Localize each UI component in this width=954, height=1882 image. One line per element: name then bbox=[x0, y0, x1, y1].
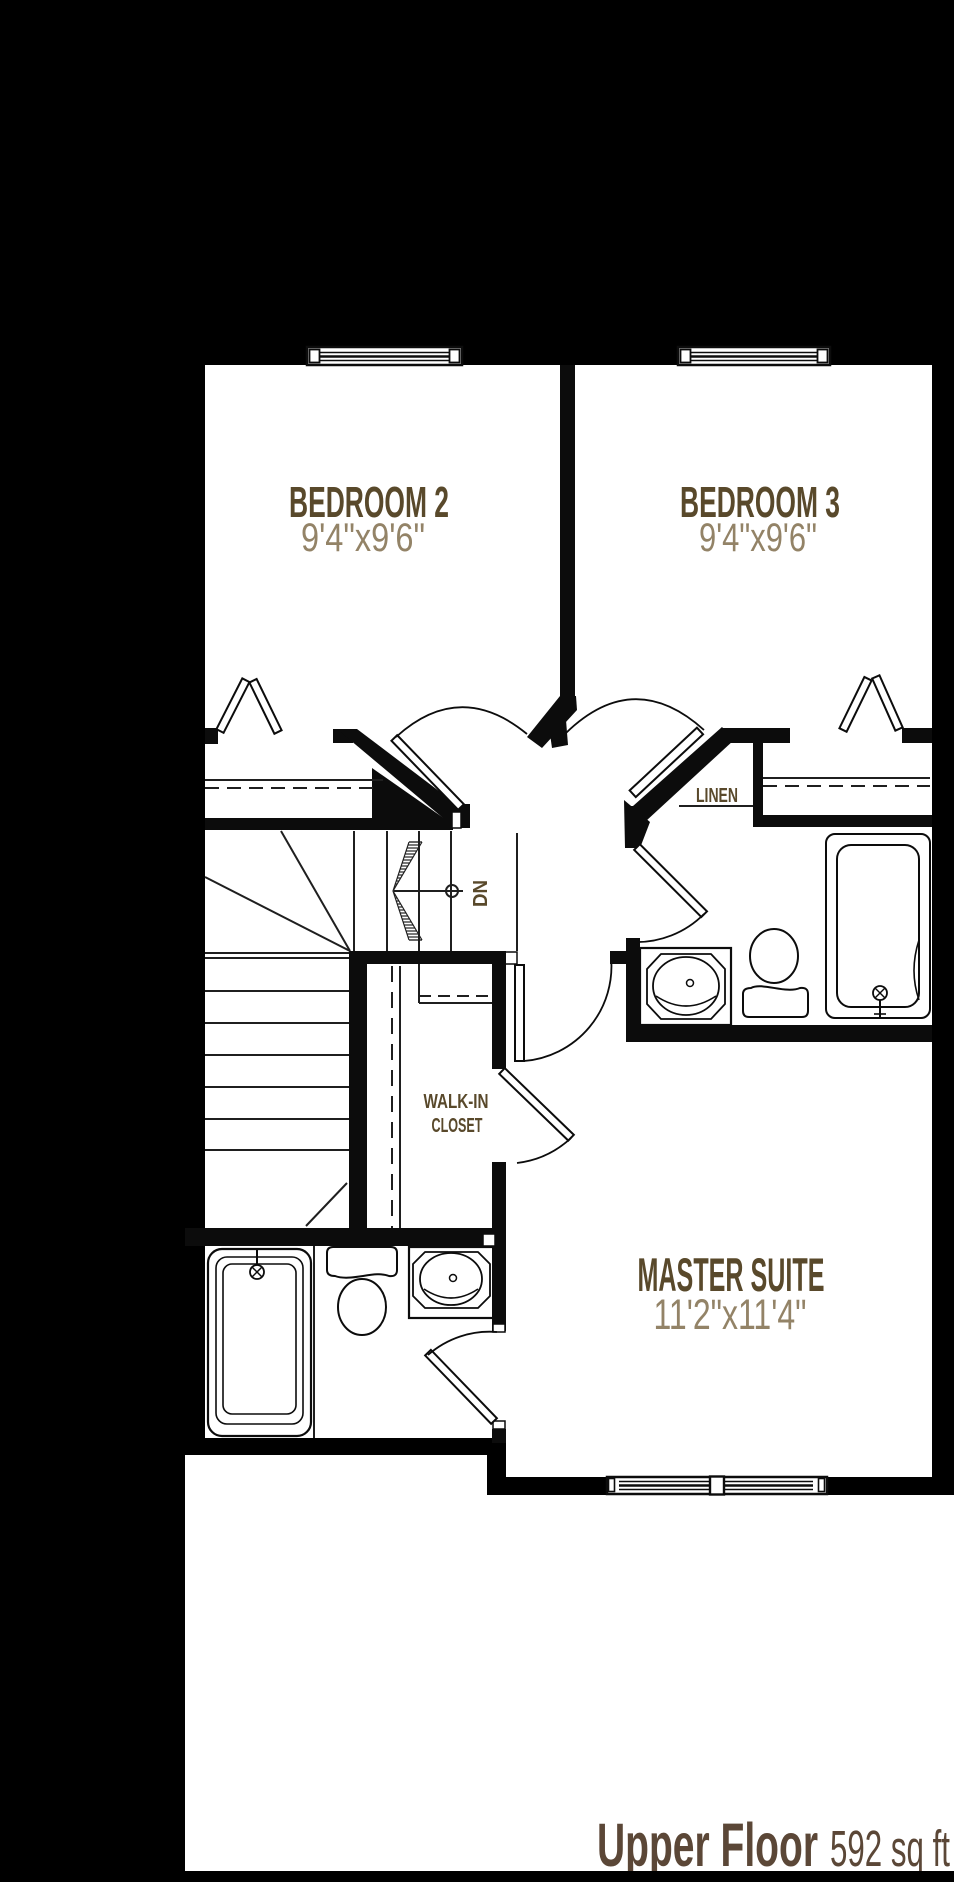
svg-text:CLOSET: CLOSET bbox=[432, 1115, 483, 1137]
svg-text:11'2"x11'4": 11'2"x11'4" bbox=[654, 1291, 807, 1339]
svg-text:DN: DN bbox=[470, 880, 492, 907]
svg-text:LINEN: LINEN bbox=[696, 785, 738, 807]
svg-text:9'4"x9'6": 9'4"x9'6" bbox=[301, 516, 425, 560]
svg-text:9'4"x9'6": 9'4"x9'6" bbox=[699, 516, 817, 560]
svg-text:Upper Floor: Upper Floor bbox=[597, 1811, 818, 1879]
svg-text:WALK-IN: WALK-IN bbox=[424, 1091, 489, 1113]
svg-text:592 sq ft: 592 sq ft bbox=[830, 1820, 950, 1877]
